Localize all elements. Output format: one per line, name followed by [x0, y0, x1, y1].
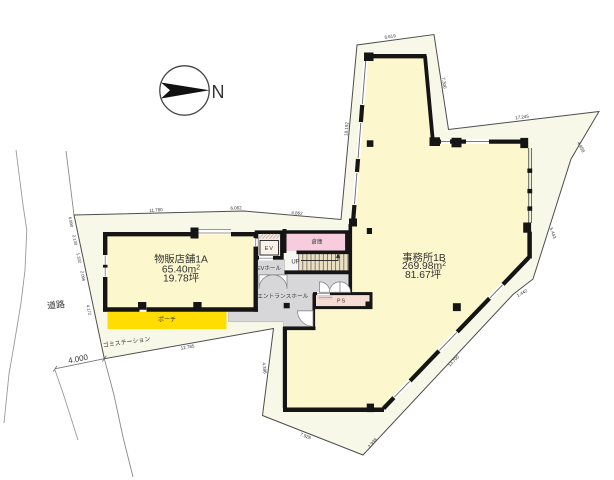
svg-text:ポーチ: ポーチ: [158, 316, 176, 324]
svg-text:道路: 道路: [46, 298, 65, 311]
svg-text:11.780: 11.780: [149, 207, 163, 213]
svg-text:6.062: 6.062: [230, 205, 242, 211]
svg-text:倉庫: 倉庫: [311, 238, 323, 246]
svg-text:19.78坪: 19.78坪: [163, 272, 199, 285]
svg-text:物販店舗1A: 物販店舗1A: [154, 253, 208, 266]
svg-text:EVホール: EVホール: [257, 265, 282, 272]
svg-text:PS: PS: [337, 299, 346, 305]
svg-text:エントランスホール: エントランスホール: [257, 293, 308, 300]
svg-text:UP: UP: [291, 259, 299, 265]
svg-text:N: N: [212, 82, 225, 102]
svg-text:EV: EV: [265, 246, 274, 252]
svg-text:81.67坪: 81.67坪: [405, 268, 441, 281]
svg-text:4.862: 4.862: [291, 210, 303, 216]
